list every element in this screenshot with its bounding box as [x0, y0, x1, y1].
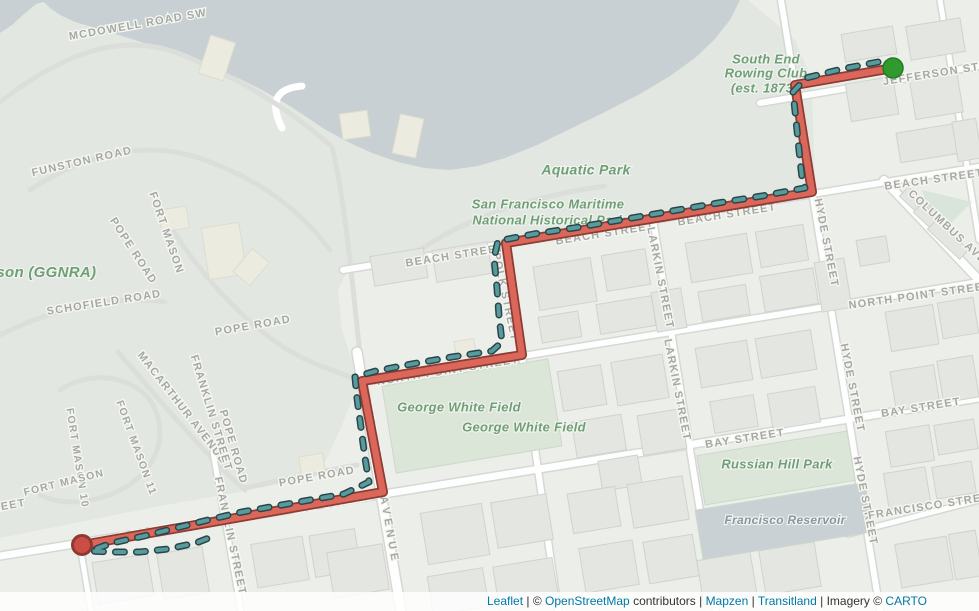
attribution-separator: | — [817, 594, 827, 608]
building — [710, 395, 759, 434]
building — [533, 258, 597, 311]
area-label: Francisco Reservoir — [724, 513, 846, 527]
area-label: Rowing Club — [725, 65, 808, 80]
start-marker[interactable] — [883, 58, 903, 78]
building — [601, 249, 650, 292]
building — [937, 297, 978, 338]
building — [885, 425, 934, 468]
area-label: Aquatic Park — [540, 162, 631, 178]
building — [327, 544, 390, 598]
building — [895, 536, 953, 588]
building — [339, 110, 370, 140]
building — [755, 330, 817, 379]
building — [755, 224, 808, 267]
area-label: Russian Hill Park — [721, 456, 833, 471]
building — [491, 494, 554, 548]
attribution-bar: Leaflet | © OpenStreetMap contributors |… — [0, 592, 979, 611]
attribution-link[interactable]: Mapzen — [706, 594, 749, 608]
map-container[interactable]: MCDOWELL ROAD SWFUNSTON ROADFORT MASONPO… — [0, 0, 979, 611]
building — [643, 534, 699, 584]
area-label: (est. 1873 — [731, 80, 794, 95]
attribution-text: Leaflet | © OpenStreetMap contributors |… — [487, 594, 927, 608]
area-label: South End — [732, 51, 800, 66]
attribution-separator: contributors — [630, 594, 696, 608]
building — [567, 486, 621, 533]
attribution-separator: | — [748, 594, 758, 608]
building — [767, 386, 820, 429]
attribution-separator: © — [533, 594, 545, 608]
attribution-link[interactable]: Leaflet — [487, 594, 523, 608]
area-label: ason (GGNRA) — [0, 264, 96, 281]
attribution-separator: Imagery © — [827, 594, 886, 608]
attribution-link[interactable]: Transitland — [758, 594, 817, 608]
building — [627, 476, 689, 528]
building — [885, 304, 939, 351]
attribution-link[interactable]: CARTO — [885, 594, 927, 608]
attribution-separator: | — [696, 594, 706, 608]
end-marker[interactable] — [73, 536, 92, 555]
building — [420, 503, 490, 564]
building — [611, 354, 669, 406]
building — [579, 540, 640, 593]
attribution-link[interactable]: OpenStreetMap — [545, 594, 630, 608]
map-svg[interactable]: MCDOWELL ROAD SWFUNSTON ROADFORT MASONPO… — [0, 0, 979, 611]
building — [251, 536, 309, 588]
building — [695, 340, 753, 388]
attribution-separator: | — [523, 594, 533, 608]
area-label: George White Field — [397, 399, 522, 414]
building — [557, 365, 607, 412]
area-label: San Francisco Maritime — [472, 196, 625, 211]
area-label: George White Field — [462, 419, 587, 434]
building — [759, 542, 822, 595]
building — [934, 419, 978, 455]
building — [856, 236, 890, 267]
